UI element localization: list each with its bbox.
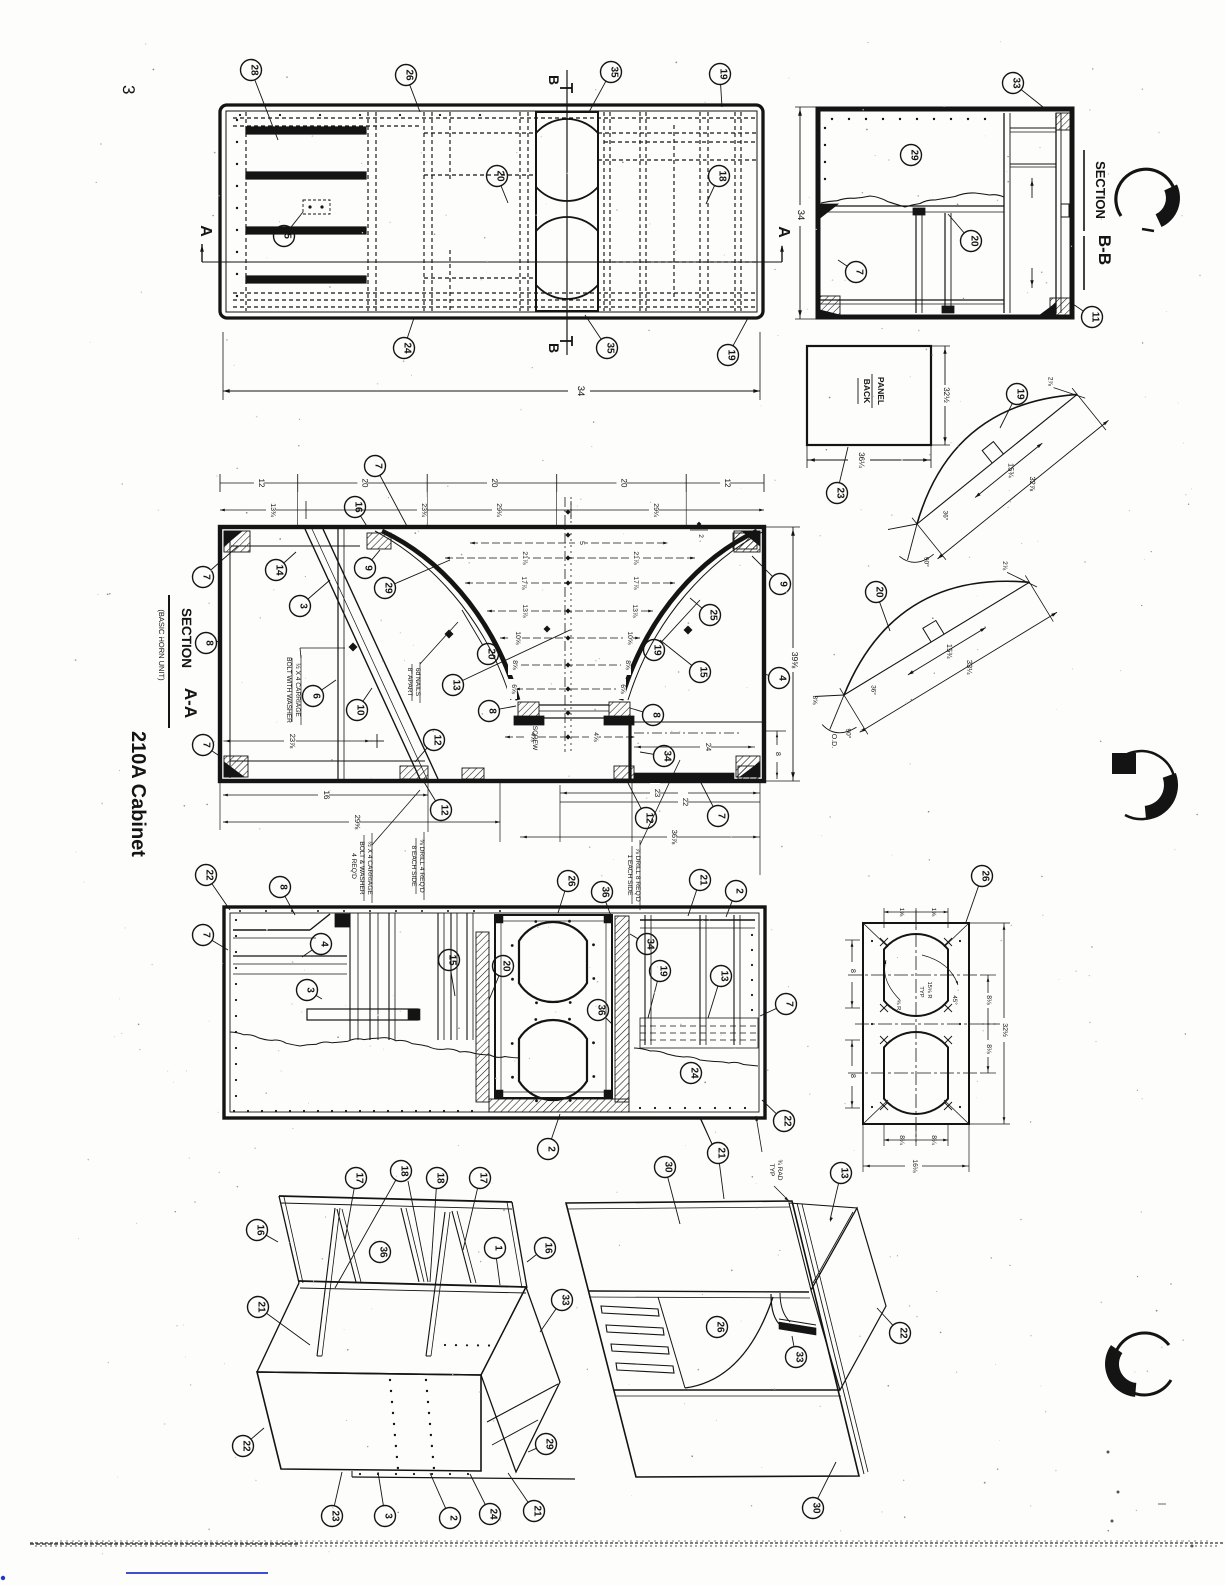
svg-text:8⅝: 8⅝: [511, 660, 518, 670]
svg-text:20: 20: [490, 479, 499, 488]
svg-text:20: 20: [486, 648, 497, 660]
svg-text:7: 7: [201, 742, 212, 748]
svg-text:9: 9: [778, 581, 789, 587]
svg-text:26: 26: [715, 1321, 726, 1333]
svg-text:3: 3: [383, 1513, 394, 1519]
svg-text:B: B: [546, 343, 562, 353]
svg-text:B: B: [546, 75, 562, 85]
svg-text:8¼: 8¼: [930, 1135, 937, 1145]
svg-text:36°: 36°: [869, 685, 876, 695]
svg-text:5: 5: [282, 233, 293, 239]
svg-text:15: 15: [698, 666, 709, 678]
svg-text:3: 3: [298, 603, 309, 609]
svg-text:20: 20: [495, 170, 506, 182]
svg-text:23: 23: [653, 789, 662, 797]
svg-text:(BASIC HORN UNIT): (BASIC HORN UNIT): [157, 609, 166, 681]
svg-text:16⅛: 16⅛: [911, 1159, 918, 1173]
svg-text:8: 8: [849, 969, 856, 973]
svg-text:3: 3: [119, 85, 138, 94]
svg-text:6⅝: 6⅝: [510, 684, 517, 694]
svg-text:SECTION: SECTION: [1093, 161, 1108, 219]
svg-text:34: 34: [645, 938, 656, 950]
svg-text:7: 7: [201, 932, 212, 938]
svg-text:9: 9: [363, 565, 374, 571]
svg-text:18: 18: [435, 1172, 446, 1184]
svg-text:7: 7: [716, 813, 727, 819]
svg-text:23: 23: [330, 1510, 341, 1522]
svg-text:17: 17: [354, 1172, 365, 1184]
svg-text:A: A: [775, 226, 792, 238]
svg-text:2: 2: [734, 888, 745, 894]
svg-text:30: 30: [811, 1502, 822, 1514]
svg-text:20: 20: [501, 960, 512, 972]
svg-text:36°: 36°: [942, 510, 949, 520]
svg-text:29¼: 29¼: [652, 503, 659, 517]
svg-text:21: 21: [532, 1505, 543, 1517]
svg-text:22: 22: [681, 798, 690, 806]
svg-text:45°: 45°: [951, 995, 958, 1005]
svg-text:30: 30: [663, 1161, 674, 1173]
svg-text:22: 22: [782, 1115, 793, 1127]
svg-text:A-A: A-A: [181, 688, 200, 718]
svg-text:6: 6: [311, 693, 322, 699]
svg-text:PANEL: PANEL: [876, 377, 886, 405]
svg-text:26: 26: [404, 69, 415, 81]
svg-text:8: 8: [487, 708, 498, 714]
svg-text:18: 18: [399, 1165, 410, 1177]
svg-text:4 REQ'D: 4 REQ'D: [350, 853, 357, 879]
svg-text:20: 20: [969, 235, 980, 247]
svg-text:B-B: B-B: [1095, 235, 1114, 265]
svg-text:22: 22: [241, 1440, 252, 1452]
svg-text:8⅛: 8⅛: [985, 1044, 992, 1054]
svg-text:33: 33: [1011, 77, 1022, 89]
svg-text:3: 3: [305, 987, 316, 993]
svg-text:20: 20: [360, 479, 369, 488]
svg-text:12: 12: [723, 479, 732, 488]
svg-text:13: 13: [451, 679, 462, 691]
svg-text:24: 24: [704, 743, 713, 751]
svg-text:24: 24: [488, 1508, 499, 1520]
svg-text:32½: 32½: [942, 387, 951, 403]
svg-text:1⅝: 1⅝: [930, 908, 937, 917]
svg-text:13⅞: 13⅞: [521, 604, 528, 618]
svg-text:7: 7: [201, 574, 212, 580]
svg-text:33: 33: [560, 1294, 571, 1306]
svg-text:21: 21: [716, 1147, 727, 1159]
svg-text:26: 26: [566, 875, 577, 887]
svg-text:2: 2: [697, 534, 704, 538]
svg-text:35: 35: [605, 342, 616, 354]
svg-text:2⅞: 2⅞: [1001, 561, 1008, 571]
svg-text:BACK: BACK: [862, 379, 872, 404]
svg-text:90°: 90°: [844, 728, 851, 738]
svg-text:7: 7: [373, 463, 384, 469]
svg-text:8¼: 8¼: [898, 1135, 905, 1145]
svg-text:8: 8: [278, 884, 289, 890]
svg-text:39⅝: 39⅝: [790, 652, 800, 669]
svg-text:8: 8: [204, 640, 215, 646]
svg-text:22: 22: [204, 869, 215, 881]
svg-text:4: 4: [319, 941, 330, 947]
svg-text:35: 35: [609, 66, 620, 78]
svg-text:8: 8: [774, 752, 781, 756]
svg-text:17⅞: 17⅞: [632, 576, 639, 590]
svg-text:28: 28: [249, 64, 260, 76]
svg-text:24: 24: [402, 342, 413, 354]
svg-text:29¼: 29¼: [495, 503, 502, 517]
svg-text:10⅝: 10⅝: [514, 631, 521, 645]
svg-text:23¾: 23¾: [420, 503, 427, 517]
svg-text:21⅞: 21⅞: [632, 551, 639, 565]
svg-text:20: 20: [620, 479, 629, 488]
svg-text:BOLT WITH WASHER: BOLT WITH WASHER: [285, 657, 292, 723]
svg-text:10⅝: 10⅝: [626, 631, 633, 645]
svg-text:18: 18: [717, 170, 728, 182]
svg-text:14: 14: [274, 564, 285, 576]
svg-text:12: 12: [439, 804, 450, 816]
svg-text:29: 29: [544, 1438, 555, 1450]
svg-text:36¼: 36¼: [857, 452, 866, 468]
svg-text:TYP: TYP: [918, 986, 924, 997]
svg-text:4: 4: [777, 675, 788, 681]
svg-text:2: 2: [546, 1146, 557, 1152]
svg-text:12: 12: [644, 812, 655, 824]
svg-text:12: 12: [432, 734, 443, 746]
svg-text:32⅞: 32⅞: [1028, 476, 1037, 491]
svg-text:⅝ R: ⅝ R: [895, 1000, 901, 1011]
svg-text:15: 15: [447, 954, 458, 966]
svg-text:11: 11: [1090, 312, 1101, 323]
svg-text:¾ RAD: ¾ RAD: [776, 1160, 783, 1181]
svg-text:29: 29: [909, 149, 920, 161]
svg-text:23: 23: [835, 487, 846, 499]
svg-text:2⅞: 2⅞: [1047, 377, 1054, 387]
svg-text:5: 5: [578, 541, 585, 545]
svg-text:15¾: 15¾: [945, 644, 954, 659]
svg-text:22: 22: [898, 1327, 909, 1339]
svg-text:34: 34: [575, 386, 586, 397]
svg-text:½ X 4 CARRIAGE: ½ X 4 CARRIAGE: [294, 663, 301, 717]
svg-text:36: 36: [600, 886, 611, 898]
svg-text:17⅞: 17⅞: [520, 576, 527, 590]
svg-text:33: 33: [794, 1351, 805, 1363]
svg-text:1: 1: [493, 1245, 504, 1251]
svg-text:15¾: 15¾: [1007, 463, 1016, 478]
svg-text:8⅝: 8⅝: [624, 660, 631, 670]
svg-text:16: 16: [353, 501, 364, 513]
svg-text:29⅝: 29⅝: [353, 815, 362, 830]
svg-text:34: 34: [662, 750, 673, 762]
svg-text:36⅞: 36⅞: [670, 830, 679, 845]
svg-text:21: 21: [698, 874, 709, 886]
svg-text:8⅛: 8⅛: [985, 995, 992, 1005]
svg-text:25: 25: [708, 609, 719, 621]
svg-text:29: 29: [383, 582, 394, 594]
svg-text:19: 19: [718, 68, 729, 80]
svg-text:19: 19: [652, 644, 663, 656]
svg-text:13: 13: [839, 1167, 850, 1179]
svg-text:21⅞: 21⅞: [521, 551, 528, 565]
svg-text:16: 16: [322, 791, 331, 800]
svg-text:13: 13: [719, 970, 730, 982]
svg-text:15⅝ R: 15⅝ R: [926, 981, 932, 998]
svg-text:1⅝: 1⅝: [898, 908, 905, 917]
svg-text:36: 36: [596, 1004, 607, 1016]
svg-text:2: 2: [448, 1515, 459, 1521]
svg-text:6⅝: 6⅝: [619, 684, 626, 694]
svg-text:12: 12: [257, 479, 266, 488]
svg-text:19: 19: [726, 349, 737, 361]
svg-text:23⅞: 23⅞: [288, 734, 297, 749]
svg-text:26: 26: [980, 870, 991, 882]
svg-text:210A Cabinet: 210A Cabinet: [127, 731, 149, 857]
svg-text:13¾: 13¾: [269, 503, 276, 517]
svg-text:21: 21: [256, 1301, 267, 1313]
svg-text:SECTION: SECTION: [179, 608, 194, 668]
svg-text:7: 7: [854, 269, 865, 275]
svg-text:34: 34: [795, 210, 806, 221]
svg-text:4⅝: 4⅝: [592, 732, 599, 742]
svg-text:19: 19: [658, 965, 669, 977]
svg-text:20: 20: [874, 586, 885, 598]
svg-text:13⅞: 13⅞: [631, 604, 638, 618]
svg-text:32½: 32½: [1001, 1023, 1008, 1037]
svg-text:36: 36: [378, 1246, 389, 1258]
svg-text:19: 19: [1015, 388, 1026, 400]
svg-text:90°: 90°: [922, 557, 929, 567]
svg-text:7: 7: [784, 1001, 795, 1007]
svg-text:24: 24: [689, 1067, 700, 1079]
svg-text:TYP: TYP: [768, 1164, 775, 1177]
svg-text:16: 16: [255, 1224, 266, 1236]
svg-text:10: 10: [355, 704, 366, 716]
svg-text:O.D.: O.D.: [830, 734, 837, 748]
svg-text:16: 16: [543, 1242, 554, 1254]
svg-text:A: A: [197, 225, 214, 237]
svg-text:3⅝: 3⅝: [811, 695, 818, 705]
svg-text:8: 8: [849, 1074, 856, 1078]
svg-text:8: 8: [651, 712, 662, 718]
svg-text:17: 17: [478, 1172, 489, 1184]
svg-text:SCREW: SCREW: [531, 726, 538, 751]
svg-text:33¼: 33¼: [965, 660, 974, 675]
